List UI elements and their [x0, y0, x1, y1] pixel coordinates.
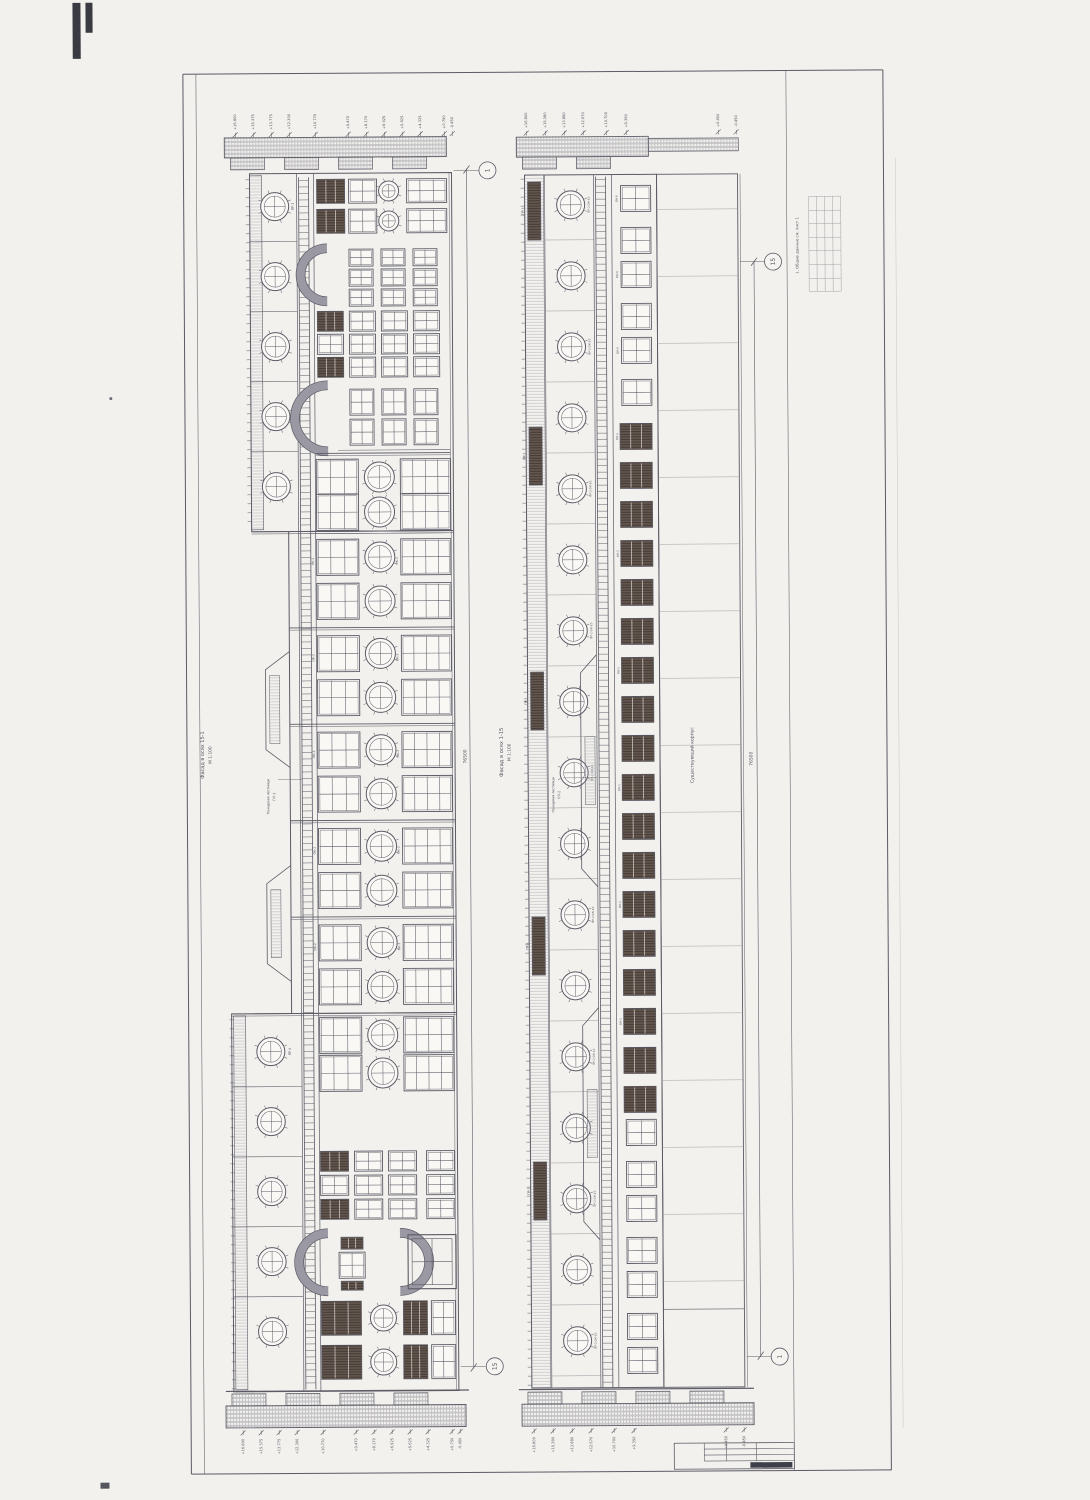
drawing-label: ПР-2 ОК-10 — [594, 1332, 598, 1348]
drawing-shape — [372, 495, 373, 498]
drawing-shape — [561, 1334, 564, 1335]
drawing-shape — [396, 1312, 399, 1313]
dark-window — [621, 657, 653, 683]
drawing-shape — [393, 208, 394, 211]
drawing-shape — [365, 993, 368, 994]
drawing-shape — [232, 1394, 266, 1406]
drawing-shape — [580, 899, 581, 902]
drawing-label: ОК-3 — [396, 750, 400, 758]
drawing-label: ОК-1 — [616, 550, 620, 557]
dark-window — [341, 1281, 363, 1290]
drawing-shape — [386, 636, 387, 639]
drawing-shape — [396, 883, 399, 884]
drawing-shape — [374, 829, 375, 832]
drawing-shape — [386, 584, 387, 587]
drawing-shape — [568, 899, 569, 902]
drawing-shape — [571, 1283, 572, 1286]
drawing-label: ПР-2 ОК-10 — [588, 480, 592, 496]
drawing-shape — [375, 970, 376, 973]
drawing-shape — [288, 212, 291, 213]
elevation-mark: +15.380 — [551, 1436, 555, 1452]
drawing-shape — [368, 1323, 371, 1324]
dark-window — [620, 423, 652, 449]
drawing-shape — [528, 1392, 562, 1404]
drawing-shape — [255, 1185, 258, 1186]
drawing-shape — [611, 175, 618, 1388]
drawing-shape — [288, 270, 291, 271]
drawing-shape — [704, 1460, 794, 1461]
drawing-shape — [557, 565, 560, 566]
drawing-shape — [363, 646, 366, 647]
dark-window — [321, 1199, 349, 1219]
drawing-shape — [583, 1254, 584, 1257]
drawing-label: ПЛ-1 — [272, 793, 276, 801]
drawing-shape — [398, 195, 401, 196]
elevation-mark: +0.750 — [450, 1437, 454, 1451]
drawing-shape — [288, 200, 291, 201]
dark-window — [624, 1086, 656, 1112]
ground-band — [522, 1403, 754, 1426]
drawing-shape — [690, 1391, 724, 1403]
drawing-shape — [648, 138, 738, 152]
drawing-shape — [362, 505, 365, 506]
drawing-shape — [290, 726, 455, 727]
drawing-shape — [277, 1135, 278, 1138]
drawing-shape — [268, 220, 269, 223]
drawing-shape — [578, 473, 579, 476]
drawing-shape — [394, 483, 397, 484]
drawing-shape — [560, 1133, 563, 1134]
drawing-shape — [268, 261, 269, 264]
drawing-shape — [394, 1393, 428, 1405]
drawing-shape — [564, 218, 565, 221]
drawing-shape — [398, 216, 401, 217]
drawing-label: Пожарная лестница — [266, 779, 270, 814]
drawing-shape — [365, 883, 368, 884]
drawing-shape — [394, 518, 397, 519]
drawing-label: ОК-6 — [615, 195, 619, 202]
drawing-shape — [388, 969, 389, 972]
drawing-shape — [555, 340, 558, 341]
drawing-shape — [387, 680, 388, 683]
drawing-shape — [364, 690, 367, 691]
drawing-shape — [374, 733, 375, 736]
elevation-mark: +12.670 — [581, 111, 585, 127]
drawing-shape — [388, 904, 389, 907]
drawing-shape — [579, 615, 580, 618]
elevation-mark: +16.800 — [241, 1438, 245, 1454]
drawing-shape — [389, 1087, 390, 1090]
drawing-shape — [266, 1275, 267, 1278]
elevation-mark: -0.450 — [734, 115, 738, 127]
drawing-shape — [585, 411, 588, 412]
drawing-shape — [567, 757, 568, 760]
drawing-shape — [256, 1255, 259, 1256]
dark-window — [321, 1301, 361, 1335]
page-edge — [895, 158, 903, 1428]
drawing-shape — [559, 979, 562, 980]
drawing-shape — [558, 766, 561, 767]
blank-wall — [656, 174, 744, 1387]
drawing-shape — [582, 1112, 583, 1115]
drawing-shape — [373, 526, 374, 529]
drawing-shape — [567, 715, 568, 718]
drawing-shape — [578, 544, 579, 547]
drawing-shape — [280, 190, 281, 193]
drawing-shape — [376, 1087, 377, 1090]
drawing-shape — [266, 1316, 267, 1319]
drawing-shape — [566, 573, 567, 576]
drawing-shape — [282, 470, 283, 473]
drawing-shape — [255, 1045, 258, 1046]
drawing-label: ОК-1 — [616, 667, 620, 674]
drawing-shape — [388, 925, 389, 928]
drawing-shape — [289, 533, 454, 534]
drawing-shape — [363, 563, 366, 564]
drawing-shape — [375, 957, 376, 960]
existing-building-label: Существующий корпус — [688, 727, 695, 784]
drawing-shape — [365, 936, 368, 937]
drawing-shape — [569, 970, 570, 973]
drawing-shape — [587, 1090, 597, 1158]
drawing-shape — [388, 860, 389, 863]
drawing-shape — [365, 980, 368, 981]
drawing-shape — [364, 703, 367, 704]
drawing-shape — [564, 189, 565, 192]
drawing-shape — [375, 926, 376, 929]
drawing-label: ПР-3 — [521, 207, 525, 214]
drawing-shape — [389, 1056, 390, 1059]
drawing-shape — [568, 928, 569, 931]
dark-window — [622, 774, 654, 800]
drawing-shape — [285, 1115, 288, 1116]
drawing-shape — [561, 1192, 564, 1193]
drawing-shape — [582, 1070, 583, 1073]
elevation-mark: +4.325 — [418, 115, 422, 128]
drawing-shape — [570, 1212, 571, 1215]
drawing-shape — [585, 737, 595, 805]
drawing-shape — [226, 1390, 469, 1391]
drawing-shape — [376, 1049, 377, 1052]
drawing-shape — [397, 1066, 400, 1067]
drawing-shape — [571, 1354, 572, 1357]
drawing-label: ПР-2 ОК-10 — [587, 196, 591, 212]
drawing-shape — [387, 777, 388, 780]
drawing-shape — [704, 1454, 794, 1455]
elevation-mark: +15.375 — [251, 114, 255, 130]
drawing-shape — [366, 1066, 369, 1067]
drawing-shape — [564, 289, 565, 292]
drawing-shape — [591, 1275, 594, 1276]
dark-window — [318, 357, 344, 377]
drawing-shape — [558, 837, 561, 838]
drawing-shape — [385, 460, 386, 463]
dark-window — [621, 579, 653, 605]
drawing-shape — [570, 1183, 571, 1186]
drawing-label: ПР-2 ОК-10 — [589, 622, 593, 638]
drawing-shape — [375, 861, 376, 864]
drawing-shape — [374, 777, 375, 780]
drawing-shape — [393, 231, 394, 234]
drawing-shape — [373, 680, 374, 683]
elevation-mark: +12.300 — [287, 113, 291, 129]
drawing-shape — [576, 218, 577, 221]
drawing-shape — [580, 786, 581, 789]
drawing-label: ОК-2 — [313, 847, 317, 855]
drawing-shape — [264, 1065, 265, 1068]
elevation-mark: +10.770 — [313, 113, 317, 129]
elevation-mark: +10.700 — [604, 111, 608, 127]
drawing-shape — [340, 1393, 374, 1405]
drawing-shape — [398, 186, 401, 187]
slot-window — [532, 917, 545, 975]
dark-window — [317, 311, 343, 331]
drawing-shape — [387, 764, 388, 767]
drawing-shape — [270, 500, 271, 503]
drawing-shape — [386, 571, 387, 574]
drawing-shape — [561, 1275, 564, 1276]
drawing-shape — [373, 571, 374, 574]
drawing-shape — [389, 1330, 390, 1333]
drawing-label: ПЛ-2 — [557, 791, 561, 799]
drawing-shape — [577, 360, 578, 363]
drawing-shape — [556, 411, 559, 412]
drawing-shape — [264, 1106, 265, 1109]
drawing-label: ОК-2 — [313, 943, 317, 951]
drawing-shape — [454, 531, 457, 1013]
drawing-shape — [561, 1346, 564, 1347]
drawing-shape — [376, 1018, 377, 1021]
drawing-shape — [559, 920, 562, 921]
drawing-shape — [362, 470, 365, 471]
drawing-label: ПР-2 ОК-10 — [587, 338, 591, 354]
axis-number: 1 — [484, 168, 491, 172]
drawing-shape — [377, 1347, 378, 1350]
elevation-mark: +0.450 — [716, 113, 720, 127]
drawing-shape — [580, 857, 581, 860]
drawing-shape — [284, 1045, 287, 1046]
legend-grid — [809, 196, 810, 291]
drawing-shape — [373, 668, 374, 671]
drawing-shape — [568, 786, 569, 789]
drawing-shape — [570, 1141, 571, 1144]
drawing-shape — [394, 594, 397, 595]
drawing-shape — [363, 659, 366, 660]
drawing-shape — [580, 828, 581, 831]
drawing-shape — [365, 896, 368, 897]
drawing-shape — [316, 455, 450, 456]
drawing-shape — [372, 460, 373, 463]
dark-window — [621, 618, 653, 644]
elevation-mark: +4.325 — [426, 1438, 430, 1451]
drawing-shape — [281, 260, 282, 263]
drawing-shape — [564, 260, 565, 263]
drawing-shape — [393, 201, 394, 204]
facade-elevation-drawing: 1. Общие данные см. лист 1ПР-1ОК-2ОК-3ОК… — [0, 0, 1090, 1500]
drawing-shape — [561, 1204, 564, 1205]
drawing-shape — [377, 1375, 378, 1378]
elevation-mark: +16.800 — [532, 1436, 536, 1452]
legend-grid — [833, 196, 834, 291]
drawing-shape — [605, 177, 612, 1388]
elevation-mark: +15.380 — [543, 112, 547, 128]
drawing-shape — [582, 1183, 583, 1186]
slot-window — [528, 182, 541, 240]
drawing-shape — [589, 979, 592, 980]
brick-parapet — [516, 136, 648, 157]
drawing-shape — [394, 505, 397, 506]
drawing-shape — [560, 1050, 563, 1051]
drawing-shape — [571, 1325, 572, 1328]
drawing-shape — [291, 918, 456, 919]
dark-window — [623, 891, 655, 917]
drawing-shape — [397, 1079, 400, 1080]
drawing-label: ПР-3 — [525, 942, 529, 949]
drawing-shape — [566, 615, 567, 618]
drawing-shape — [277, 1105, 278, 1108]
drawing-label: Пожарная лестница — [551, 777, 555, 812]
drawing-shape — [264, 1036, 265, 1039]
drawing-label: М 1:100 — [506, 743, 512, 761]
drawing-shape — [636, 1391, 670, 1403]
drawing-shape — [569, 1070, 570, 1073]
drawing-shape — [396, 1367, 399, 1368]
elevation-mark: +16.800 — [524, 112, 528, 128]
elevation-mark: +0.450 — [724, 1435, 728, 1449]
drawing-shape — [557, 636, 560, 637]
drawing-shape — [568, 828, 569, 831]
drawing-shape — [396, 1323, 399, 1324]
drawing-shape — [277, 1205, 278, 1208]
elevation-mark: +6.925 — [390, 1438, 394, 1451]
dark-window — [621, 540, 653, 566]
drawing-shape — [364, 743, 367, 744]
drawing-shape — [387, 712, 388, 715]
drawing-shape — [585, 423, 588, 424]
drawing-shape — [289, 531, 454, 532]
drawing-shape — [580, 757, 581, 760]
drawing-shape — [373, 615, 374, 618]
drawing-label: ОК-6 — [615, 271, 619, 278]
drawing-label: ПР-2 ОК-10 — [591, 906, 595, 922]
drawing-shape — [386, 540, 387, 543]
drawing-shape — [281, 360, 282, 363]
drawing-shape — [268, 191, 269, 194]
drawing-shape — [566, 473, 567, 476]
drawing-shape — [589, 991, 592, 992]
drawing-shape — [286, 1393, 320, 1405]
slot-window — [534, 1162, 547, 1220]
drawing-shape — [373, 636, 374, 639]
drawing-shape — [396, 896, 399, 897]
elevation-mark: -0.450 — [742, 1435, 746, 1447]
drawing-shape — [387, 808, 388, 811]
drawing-shape — [566, 502, 567, 505]
left-facade-title: Фасад в осях 15-1 — [200, 731, 206, 779]
drawing-shape — [587, 695, 590, 696]
drawing-shape — [373, 584, 374, 587]
drawing-shape — [386, 526, 387, 529]
drawing-shape — [389, 1347, 390, 1350]
drawing-shape — [366, 1028, 369, 1029]
dark-window — [620, 501, 652, 527]
drawing-shape — [268, 290, 269, 293]
slot-window — [531, 672, 544, 730]
drawing-shape — [385, 491, 386, 494]
drawing-shape — [285, 1255, 288, 1256]
dark-window — [622, 813, 654, 839]
dark-window — [322, 1345, 362, 1379]
drawing-shape — [588, 849, 591, 850]
drawing-shape — [284, 1057, 287, 1058]
dark-window — [317, 179, 345, 203]
drawing-shape — [281, 290, 282, 293]
drawing-shape — [191, 1470, 891, 1474]
drawing-shape — [554, 198, 557, 199]
dimension-value: 76500 — [749, 751, 755, 765]
drawing-label: ОК-6 — [616, 347, 620, 354]
stamp-dark-bar — [750, 1462, 792, 1468]
drawing-shape — [280, 220, 281, 223]
scanned-drawing-sheet: 1. Общие данные см. лист 1ПР-1ОК-2ОК-3ОК… — [0, 0, 1090, 1500]
drawing-shape — [256, 1325, 259, 1326]
drawing-shape — [579, 686, 580, 689]
drawing-shape — [569, 1041, 570, 1044]
drawing-label: ПР-3 — [527, 1187, 531, 1194]
drawing-shape — [396, 787, 399, 788]
drawing-shape — [276, 1035, 277, 1038]
drawing-shape — [386, 615, 387, 618]
drawing-shape — [584, 269, 587, 270]
elevation-mark: +15.375 — [259, 1439, 263, 1455]
drawing-shape — [569, 999, 570, 1002]
elevation-mark: +6.925 — [382, 116, 386, 129]
drawing-shape — [395, 703, 398, 704]
drawing-label: ОК-3 — [397, 943, 401, 951]
drawing-label: ПР-1 — [291, 203, 295, 211]
sheet-frame — [183, 70, 883, 74]
drawing-shape — [276, 1065, 277, 1068]
drawing-shape — [394, 550, 397, 551]
drawing-shape — [269, 331, 270, 334]
dark-window — [620, 462, 652, 488]
drawing-label: ПР-4 — [288, 1048, 292, 1056]
drawing-shape — [586, 565, 589, 566]
drawing-shape — [366, 1041, 369, 1042]
drawing-shape — [289, 352, 292, 353]
drawing-shape — [255, 1115, 258, 1116]
slot-window — [529, 427, 542, 485]
drawing-label: ОК-3 — [395, 653, 399, 661]
drawing-shape — [570, 1112, 571, 1115]
drawing-shape — [362, 483, 365, 484]
scan-artifact — [100, 1483, 109, 1489]
dark-window — [623, 930, 655, 956]
drawing-shape — [255, 1057, 258, 1058]
drawing-shape — [577, 402, 578, 405]
drawing-shape — [364, 756, 367, 757]
elevation-mark: +9.470 — [354, 1437, 358, 1451]
drawing-shape — [365, 949, 368, 950]
elevation-mark: +9.470 — [346, 115, 350, 129]
drawing-label: ПР-3 — [522, 452, 526, 459]
drawing-shape — [398, 225, 401, 226]
drawing-shape — [383, 201, 384, 204]
drawing-shape — [582, 1141, 583, 1144]
drawing-shape — [394, 607, 397, 608]
dimension-value: 76500 — [462, 749, 468, 763]
drawing-shape — [290, 820, 455, 821]
